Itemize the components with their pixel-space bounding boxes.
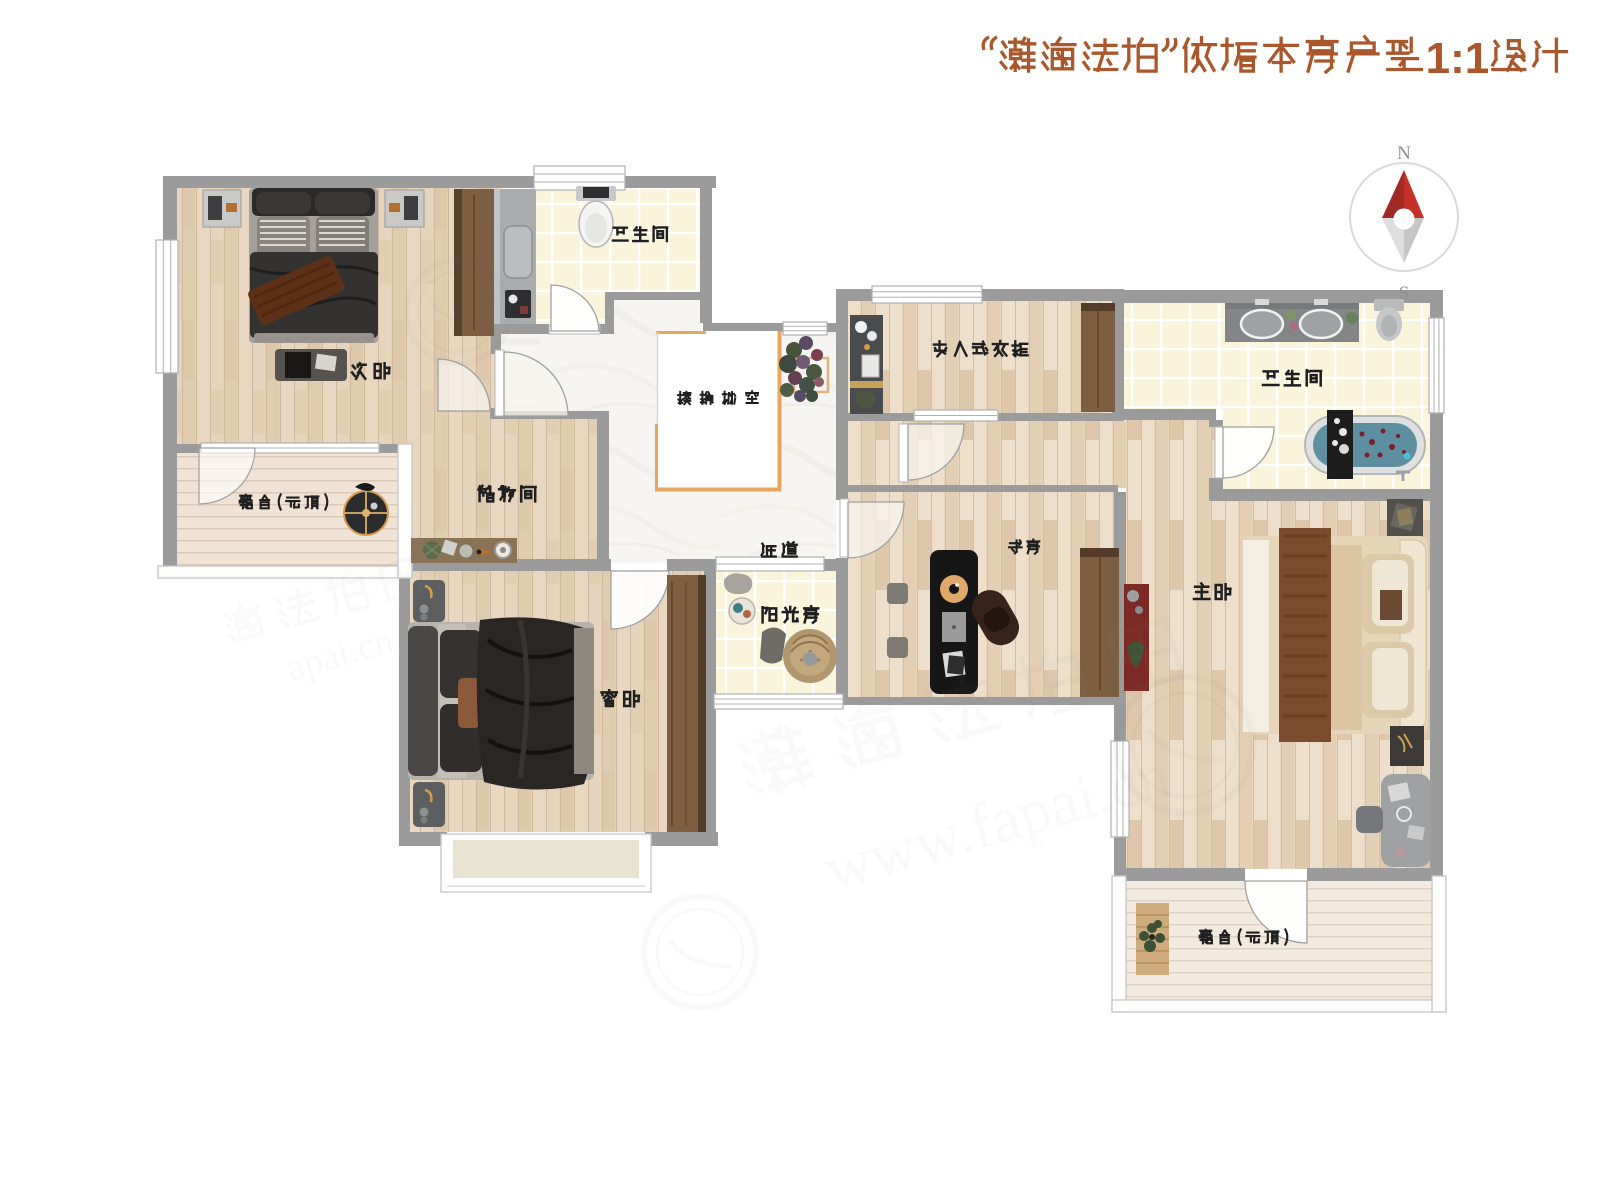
svg-text:N: N	[1397, 143, 1411, 164]
svg-text:S: S	[1399, 283, 1410, 304]
svg-text:1:1: 1:1	[1426, 34, 1490, 83]
